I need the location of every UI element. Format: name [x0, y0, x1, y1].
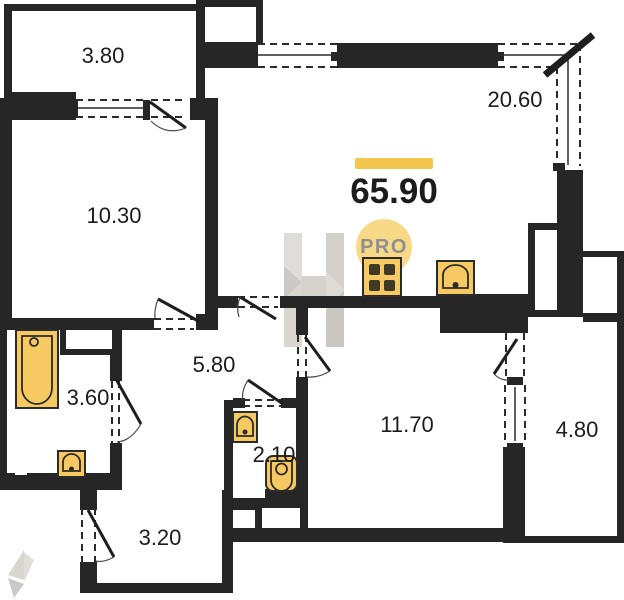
watermark-pro-label: PRO: [360, 236, 408, 258]
sink-icon: [233, 412, 257, 442]
room-area-label-kitchen-living: 20.60: [487, 87, 542, 112]
sink-icon: [58, 451, 85, 477]
stove-icon: [363, 258, 401, 296]
bathtub-icon: [16, 330, 58, 408]
floorplan-drawing: PRO 65.90 3.80 10.30 20.60 5.80 3.60 2.1…: [0, 0, 624, 600]
room-area-label-loggia-right: 4.80: [556, 417, 599, 442]
room-area-label-bedroom-2: 11.70: [380, 412, 433, 437]
floorplan-canvas: PRO 65.90 3.80 10.30 20.60 5.80 3.60 2.1…: [0, 0, 624, 600]
total-area-accent-bar: [355, 158, 433, 169]
sink-icon: [437, 261, 474, 295]
room-area-label-bedroom: 10.30: [86, 203, 141, 228]
room-area-label-entry-hall: 3.20: [139, 525, 182, 550]
total-area-label: 65.90: [350, 172, 438, 211]
fixtures: [16, 258, 474, 500]
room-area-label-bathroom: 3.60: [67, 385, 110, 410]
room-area-label-loggia-top: 3.80: [82, 43, 125, 68]
room-area-label-wc: 2.10: [253, 442, 296, 467]
room-area-label-hallway: 5.80: [193, 352, 236, 377]
